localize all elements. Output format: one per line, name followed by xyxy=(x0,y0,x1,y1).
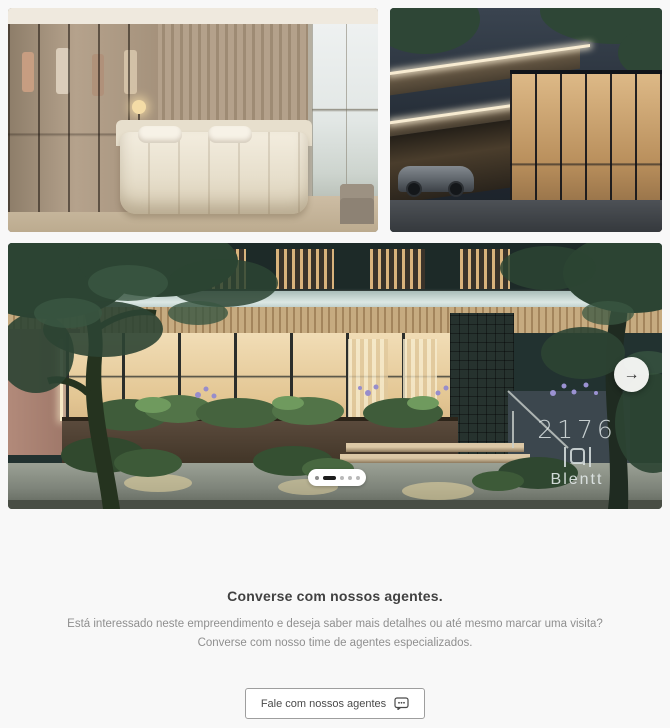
carousel-dot-0[interactable] xyxy=(315,476,319,480)
gallery-photo-bedroom[interactable] xyxy=(8,8,378,232)
floor-lamp xyxy=(132,100,146,114)
car-wheel xyxy=(406,181,422,197)
wardrobe-clothes xyxy=(56,48,70,94)
bedroom-window xyxy=(308,24,378,200)
carousel-dot-4[interactable] xyxy=(356,476,360,480)
wardrobe-clothes xyxy=(124,50,137,94)
carousel-dot-2[interactable] xyxy=(340,476,344,480)
car-wheel xyxy=(448,181,464,197)
parked-car xyxy=(398,166,474,192)
bedroom-ceiling xyxy=(8,8,378,25)
gallery-photo-facade[interactable]: 2176 Blentt → xyxy=(8,243,662,509)
bed-pillow xyxy=(138,126,182,143)
brand-name-sign: Blentt xyxy=(527,471,627,489)
talk-to-agents-label: Fale com nossos agentes xyxy=(261,698,386,710)
chat-icon xyxy=(394,697,409,710)
carousel-dot-3[interactable] xyxy=(348,476,352,480)
chair xyxy=(340,184,374,224)
carousel-dot-1[interactable] xyxy=(323,476,336,480)
carousel-dots[interactable] xyxy=(308,469,366,486)
arrow-right-icon: → xyxy=(624,366,640,384)
cta-heading: Converse com nossos agentes. xyxy=(0,588,670,604)
wardrobe-clothes xyxy=(92,54,104,96)
cta-text-line2: Converse com nosso time de agentes espec… xyxy=(0,634,670,653)
cta-text-line1: Está interessado neste empreendimento e … xyxy=(0,615,670,634)
bed xyxy=(120,132,308,214)
blentt-logo-icon xyxy=(552,445,602,474)
talk-to-agents-button[interactable]: Fale com nossos agentes xyxy=(245,688,425,719)
gallery-photo-exterior-night[interactable] xyxy=(390,8,662,232)
building-number-sign: 2176 xyxy=(527,415,627,444)
agents-cta-section: Converse com nossos agentes. Está intere… xyxy=(0,588,670,719)
bed-pillow xyxy=(208,126,252,143)
street-pavement xyxy=(390,200,662,232)
carousel-next-button[interactable]: → xyxy=(614,357,649,392)
wardrobe-clothes xyxy=(22,52,34,92)
